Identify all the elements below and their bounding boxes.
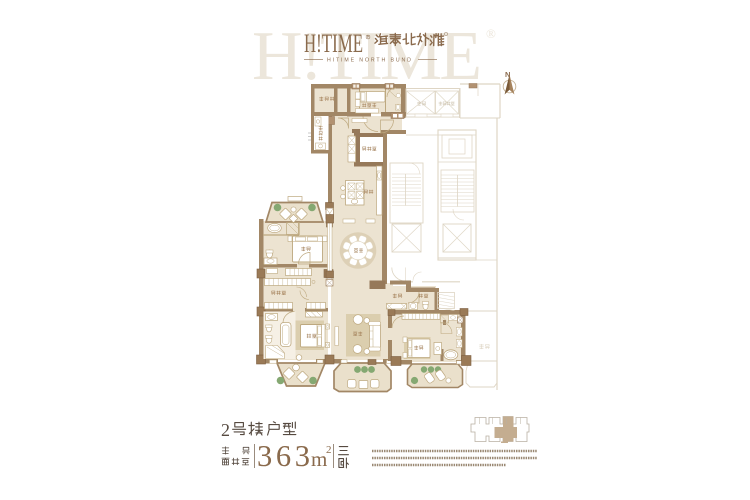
svg-text:H!TIME: H!TIME [252,18,488,95]
svg-text:®: ® [486,26,496,41]
svg-text:m: m [311,447,327,471]
svg-text:H!TIME: H!TIME [304,29,363,58]
svg-text:363: 363 [257,439,310,473]
svg-text:2: 2 [326,444,332,456]
svg-text:2: 2 [221,420,230,440]
svg-text:HITIME NORTH BUND: HITIME NORTH BUND [327,58,414,64]
